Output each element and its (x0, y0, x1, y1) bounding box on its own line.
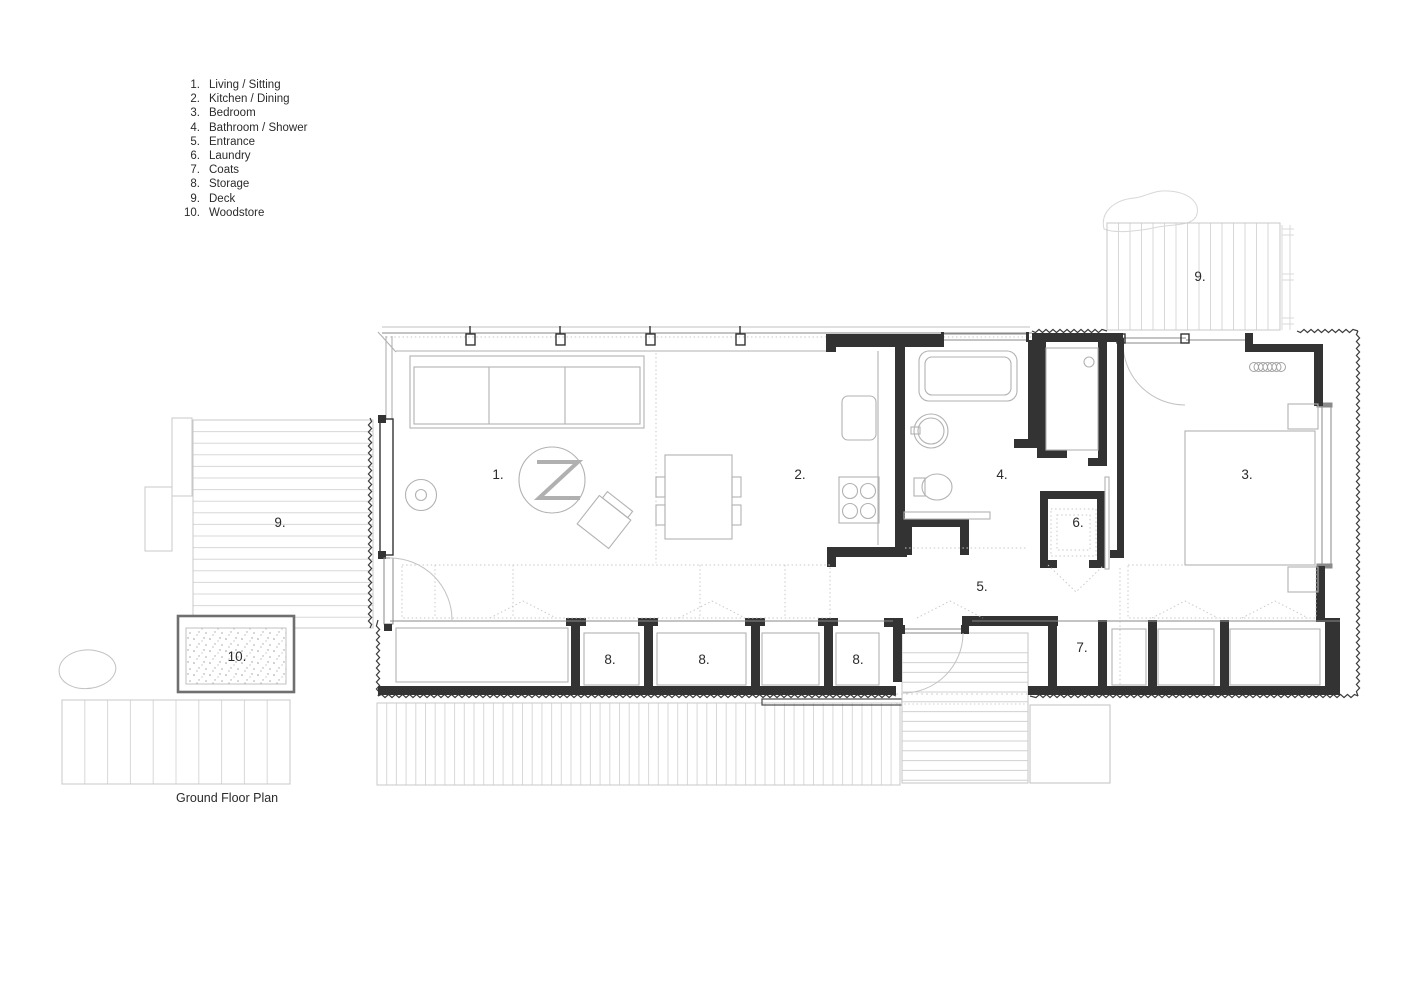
entrance-steps (896, 633, 1030, 783)
deck-post (145, 487, 172, 551)
deck-left (145, 418, 373, 628)
room-label-kitchen: 2. (794, 467, 805, 482)
boulder-outline (1103, 191, 1197, 232)
floor-plan-drawing: 1. 2. 3. 4. 5. 6. 7. 8. 8. 8. 9. 9. 10. (0, 0, 1415, 1000)
boulder-outline (59, 650, 116, 689)
room-label-storage: 8. (604, 652, 615, 667)
room-label-coats: 7. (1076, 640, 1087, 655)
floor-plan-sheet: 1.Living / Sitting 2.Kitchen / Dining 3.… (0, 0, 1415, 1000)
building-floor (377, 332, 1340, 692)
room-label-deck-top: 9. (1194, 269, 1205, 284)
deck-railing (1282, 225, 1294, 330)
room-label-storage: 8. (698, 652, 709, 667)
drawing-title: Ground Floor Plan (176, 791, 278, 805)
room-label-deck-left: 9. (274, 515, 285, 530)
room-label-entrance: 5. (976, 579, 987, 594)
room-label-living: 1. (492, 467, 503, 482)
room-label-woodstore: 10. (228, 649, 247, 664)
deck-top-right (1103, 191, 1294, 330)
entrance-pad (1030, 705, 1110, 783)
deck-bottom-left (62, 700, 290, 784)
room-label-storage: 8. (852, 652, 863, 667)
deck-post (172, 418, 192, 496)
deck-bottom-middle (377, 703, 900, 785)
room-label-bathroom: 4. (996, 467, 1007, 482)
room-label-bedroom: 3. (1241, 467, 1252, 482)
room-label-laundry: 6. (1072, 515, 1083, 530)
